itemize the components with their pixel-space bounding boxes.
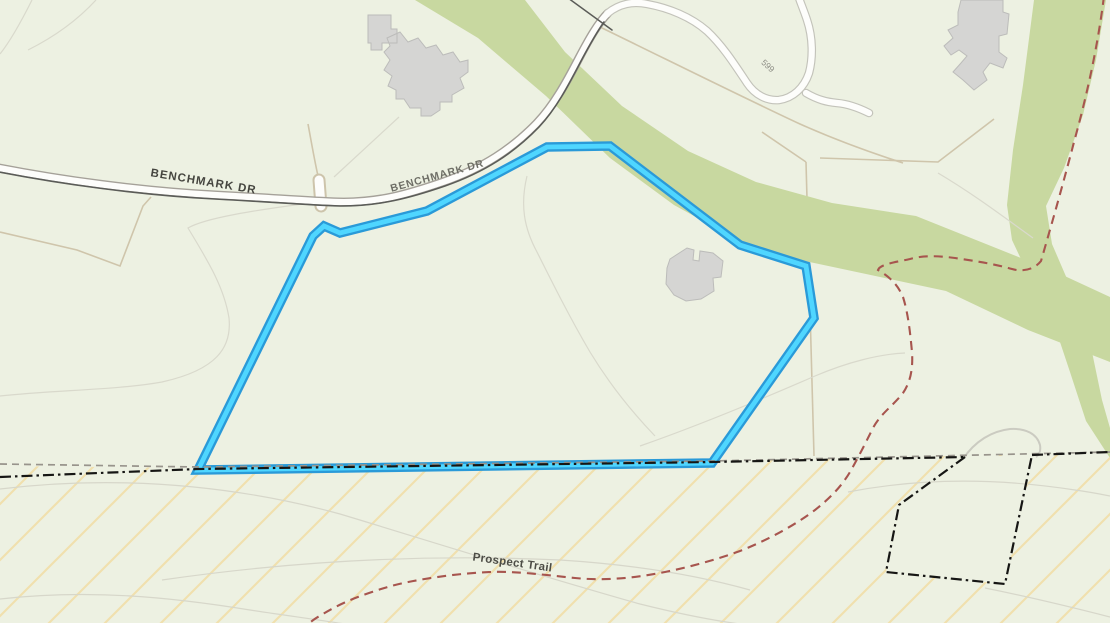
map-canvas[interactable]: BENCHMARK DR BENCHMARK DR 599 Prospect T…: [0, 0, 1110, 623]
map-viewport[interactable]: BENCHMARK DR BENCHMARK DR 599 Prospect T…: [0, 0, 1110, 623]
